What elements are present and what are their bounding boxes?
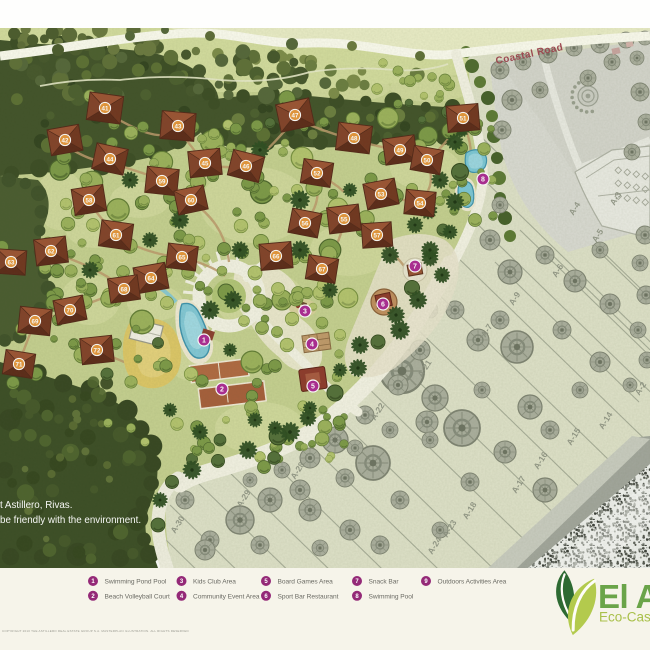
svg-text:Sport Bar Restaurant: Sport Bar Restaurant	[278, 593, 339, 600]
svg-text:Community Event Area: Community Event Area	[193, 593, 260, 600]
svg-text:Outdoors Activities Area: Outdoors Activities Area	[438, 579, 507, 586]
svg-text:Swimming Pool: Swimming Pool	[369, 593, 414, 600]
svg-text:Eco-Casitas: Eco-Casitas	[599, 610, 650, 625]
svg-text:Swimming Pond Pool: Swimming Pond Pool	[105, 579, 167, 586]
svg-text:Kids Club Area: Kids Club Area	[193, 579, 236, 586]
svg-text:Snack Bar: Snack Bar	[369, 579, 400, 586]
svg-text:COPYRIGHT 2010 THE ASTILLERO R: COPYRIGHT 2010 THE ASTILLERO REAL ESTATE…	[2, 629, 189, 633]
svg-text:Board Games Area: Board Games Area	[278, 579, 334, 586]
svg-text:Beach Volleyball Court: Beach Volleyball Court	[105, 593, 170, 600]
